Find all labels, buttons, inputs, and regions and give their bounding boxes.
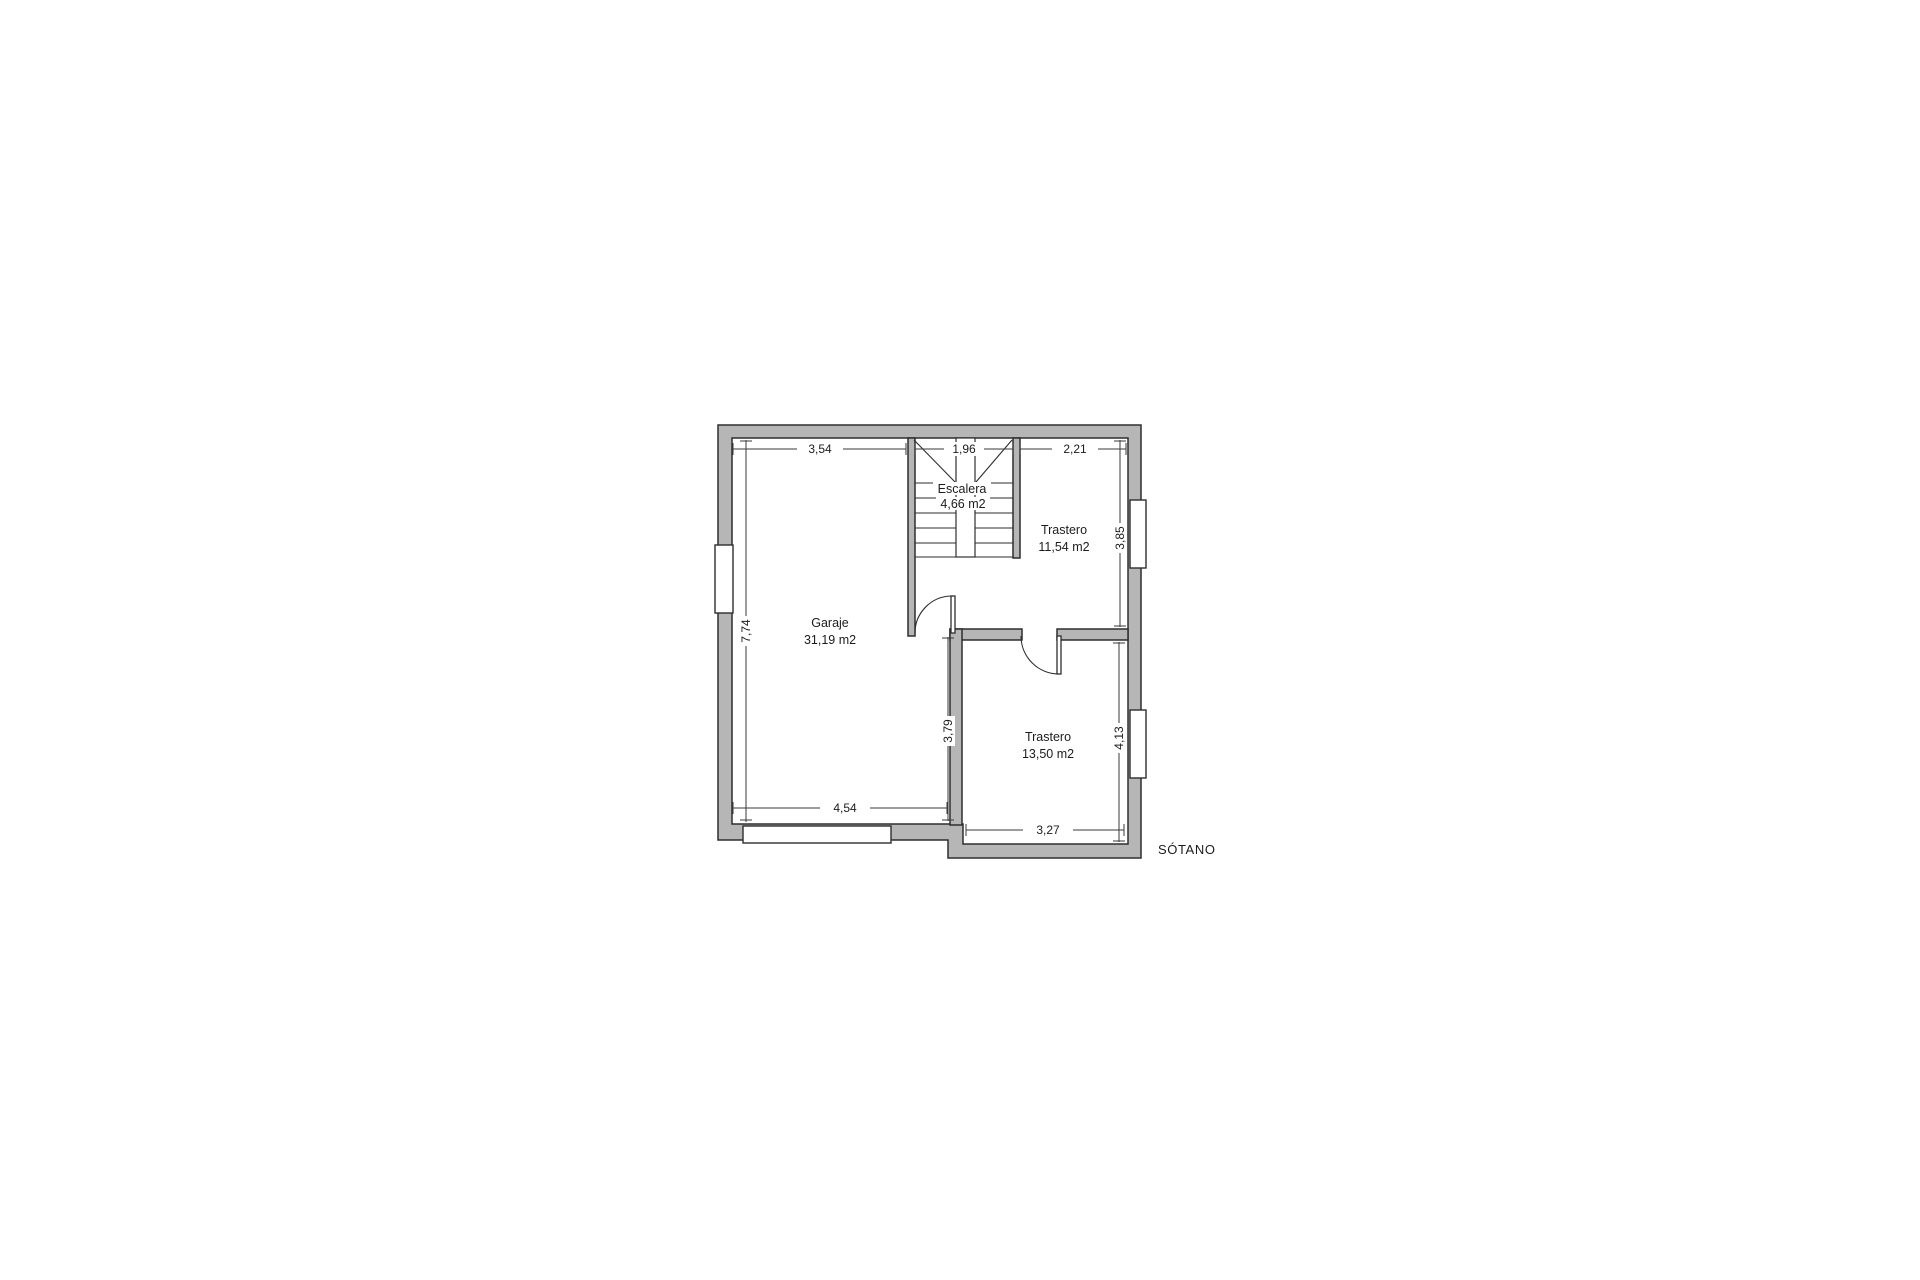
dim-label-garage-height: 7,74 — [739, 619, 753, 643]
exterior-walls — [718, 425, 1141, 858]
dim-label-trastero-top-height: 3,85 — [1113, 526, 1127, 550]
dim-label-garage-width: 3,54 — [808, 442, 832, 456]
dim-label-garage-lower-height: 3,79 — [941, 719, 955, 743]
room-label-garage-area: 31,19 m2 — [804, 633, 856, 647]
dim-label-garage-bottom-width: 4,54 — [833, 801, 857, 815]
door-leaf-hall-trastero — [1057, 636, 1061, 674]
dimension-lines — [733, 440, 1126, 842]
window-right-wall-upper — [1130, 500, 1146, 568]
exterior-wall-outline — [718, 425, 1141, 858]
window-left-wall — [715, 545, 733, 613]
floor-title: SÓTANO — [1158, 842, 1216, 857]
dim-label-trastero-top-width: 2,21 — [1063, 442, 1087, 456]
door-leaf-garage-hall — [951, 596, 955, 633]
stair-right-wall — [1013, 438, 1020, 558]
room-label-stair-area: 4,66 m2 — [940, 497, 985, 511]
window-right-wall-lower — [1130, 710, 1146, 778]
dim-label-trastero-bottom-width: 3,27 — [1036, 823, 1060, 837]
door-swing-arc-garage-hall — [915, 596, 951, 633]
dim-label-stair-width: 1,96 — [952, 442, 976, 456]
door-swing-arc-hall-trastero — [1021, 636, 1059, 674]
garage-door — [743, 826, 891, 843]
room-label-trastero-top-area: 11,54 m2 — [1038, 540, 1089, 554]
room-label-stair-name: Escalera — [938, 482, 987, 496]
room-label-garage-name: Garaje — [811, 616, 849, 630]
stair-left-wall — [908, 438, 915, 636]
floorplan-drawing: 3,54 1,96 2,21 7,74 3,85 4,13 3,79 — [0, 0, 1920, 1280]
room-label-trastero-top-name: Trastero — [1041, 523, 1087, 537]
room-label-trastero-bottom-area: 13,50 m2 — [1022, 747, 1074, 761]
dim-label-trastero-bottom-height: 4,13 — [1112, 726, 1126, 750]
room-label-trastero-bottom-name: Trastero — [1025, 730, 1071, 744]
floorplan-page: 3,54 1,96 2,21 7,74 3,85 4,13 3,79 — [0, 0, 1920, 1280]
hall-trastero-wall-right-segment — [1057, 629, 1128, 640]
